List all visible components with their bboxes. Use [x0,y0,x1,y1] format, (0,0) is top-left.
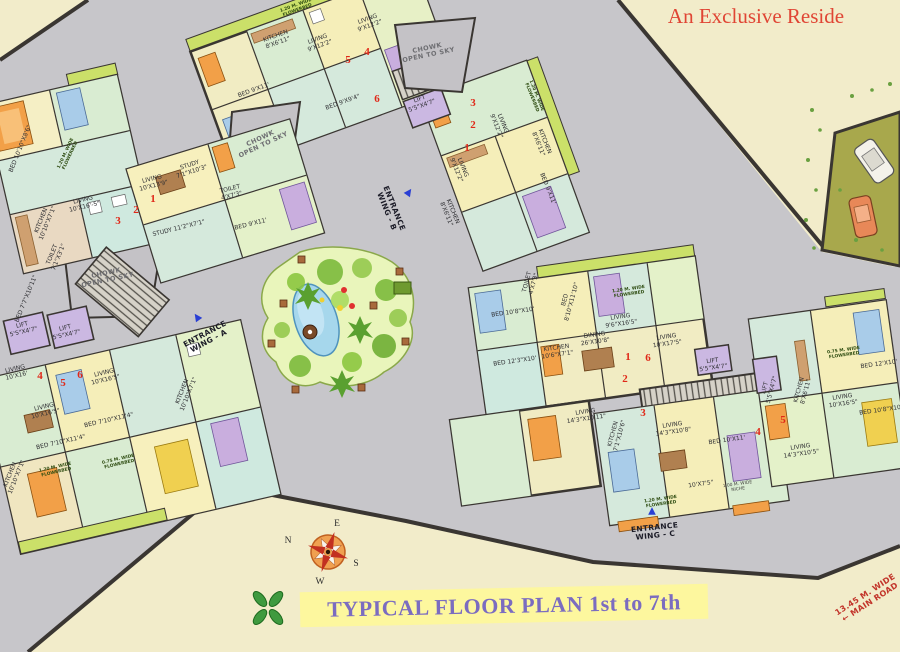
room-label: BED 10'8"X10' [491,307,535,320]
room-label: LIFT 5'5"X4'7" [759,374,779,405]
room-label: TOILET 4'X7'3" [219,184,243,202]
unit-number: 2 [470,119,476,131]
room-label: LIVING 9'X12'2" [305,32,333,53]
room-label: KITCHEN 10'6"X7'1" [540,343,574,361]
unit-number: 2 [133,204,139,216]
compass-south-label: S [353,559,358,569]
entrance-label: ENTRANCE WING - C [631,521,680,542]
room-label: LIFT 5'5"X4'7" [405,92,436,114]
room-label: TOILET 4'X7'3" [522,271,540,295]
label-layer: ENTRANCE WING - AENTRANCE WING - BENTRAN… [0,0,900,652]
unit-number: 6 [374,93,380,105]
floor-plan-page: ENTRANCE WING - AENTRANCE WING - BENTRAN… [0,0,900,652]
entrance-label: ENTRANCE WING - A [182,320,232,357]
unit-number: 6 [77,369,83,381]
room-label: LIVING 10'X16'-5" [67,194,101,214]
unit-number: 2 [622,373,628,385]
room-label: BED 9'X9'4" [325,94,361,113]
niche-label: 1.00 M. WIDE NICHE [723,481,754,495]
flowerbed-label: 1.20 M. WIDE FLOWERBED [58,138,81,172]
room-label: KITCHEN 8'X6'11" [793,377,812,406]
room-label: KITCHEN 8'X6'11" [263,29,292,50]
road-label: 13.45 M. WIDE ← MAIN ROAD [834,573,900,626]
room-label: LIVING 10'X16'5" [29,401,60,420]
room-label: LIVING 14'3"X10'5" [782,442,819,460]
room-label: LIFT 5'5"X4'7" [51,322,81,341]
room-label: KITCHEN 10'10"X7'1" [32,203,58,241]
unit-number: 1 [464,142,470,154]
room-label: LIVING 9'6"X16'5" [604,312,638,330]
flowerbed-label: 1.20 M. WIDE FLOWERBED [644,496,678,510]
room-label: LIFT 5'5"X4'7" [698,357,728,374]
unit-number: 5 [345,54,351,66]
room-label: KITCHEN 10'10"X7'1" [173,374,199,412]
flowerbed-label: 0.75 M. WIDE FLOWERBED [827,347,861,361]
room-label: TOILET 7'1"X3'1" [45,240,68,271]
room-label: BED 10'X11' [708,435,746,447]
unit-number: 1 [150,193,156,205]
room-label: BED 7'7"X10'11" [15,274,40,323]
room-label: LIVING 10'X17'5" [652,332,683,349]
room-label: LIVING 9'X12'2" [488,111,510,140]
banner-title: TYPICAL FLOOR PLAN 1st to 7th [327,589,681,622]
entrance-arrow-icon: ▲ [191,310,204,323]
unit-number: 4 [755,426,761,438]
room-label: KITCHEN 7'1"X10'6" [606,418,627,452]
unit-number: 1 [625,351,631,363]
entrance-arrow-icon: ▲ [403,185,416,198]
room-label: LIFT 5'5"X4'7" [8,319,38,338]
room-label: LIVING 10'X16' [3,364,28,382]
chowk-label: CHOWK OPEN TO SKY [400,39,455,64]
room-label: DINING 26'X10'8" [580,330,611,347]
room-label: BED 7'10"X11'4" [36,434,86,452]
unit-number: 6 [645,352,651,364]
room-label: BED 10'10"X8'6" [9,124,34,173]
room-label: BED 12'3"X10' [493,356,537,369]
chowk-label: CHOWK OPEN TO SKY [79,264,134,289]
room-label: LIVING 9'X12'2" [355,12,383,33]
compass-west-label: W [316,577,325,587]
room-label: STUDY 11'2"X7'1" [152,219,206,238]
room-label: BED 10'8"X10' [859,405,900,418]
room-label: BED 9'X11' [538,172,557,205]
unit-number: 5 [60,377,66,389]
room-label: LIVING 14'3"X10'11" [565,407,606,426]
flowerbed-label: 0.75 M. WIDE FLOWERBED [102,455,136,472]
room-label: LIVING 10'X16'5" [828,392,859,409]
room-label: BED 8'10"X11'10" [557,280,580,322]
compass-north-label: N [285,536,292,546]
flowerbed-label: 1.20 M. WIDE FLOWERBED [522,80,543,114]
entrance-label: ENTRANCE WING - B [373,185,406,235]
room-label: KITCHEN 10'10"X7'1" [1,457,27,495]
unit-number: 3 [640,407,646,419]
flowerbed-label: 1.20 M. WIDE FLOWERBED [612,286,646,300]
room-label: LIVING 10'X16'5" [89,367,120,386]
room-label: LIVING 9'X12'2" [448,155,470,184]
room-label: BED 9'X11' [237,82,271,100]
page-title: An Exclusive Reside [612,4,900,29]
compass-east-label: E [334,519,340,529]
flowerbed-label: 1.20 M. WIDE FLOWERBED [39,463,73,480]
room-label: STUDY 7'1"X10'3" [174,158,209,180]
unit-number: 5 [780,414,786,426]
room-label: KITCHEN 8'X6'11" [530,128,552,157]
room-label: LIVING 10'X13'9" [137,173,169,193]
unit-number: 4 [364,46,370,58]
room-label: KITCHEN 8'X6'11" [438,198,460,227]
unit-number: 3 [470,97,476,109]
flowerbed-label: 1.20 M. WIDE FLOWERBED [280,0,314,19]
unit-number: 3 [115,215,121,227]
chowk-label: CHOWK OPEN TO SKY [235,124,290,160]
room-label: LIVING 14'3"X10'8" [654,420,691,438]
room-label: BED 7'10"X11'4" [84,412,134,430]
entrance-arrow-icon: ▲ [648,506,656,517]
room-label: BED 12'X10' [860,359,898,371]
room-label: BED 9'X11' [234,218,268,232]
unit-number: 4 [37,370,43,382]
room-label: 10'X7'5" [688,480,714,490]
